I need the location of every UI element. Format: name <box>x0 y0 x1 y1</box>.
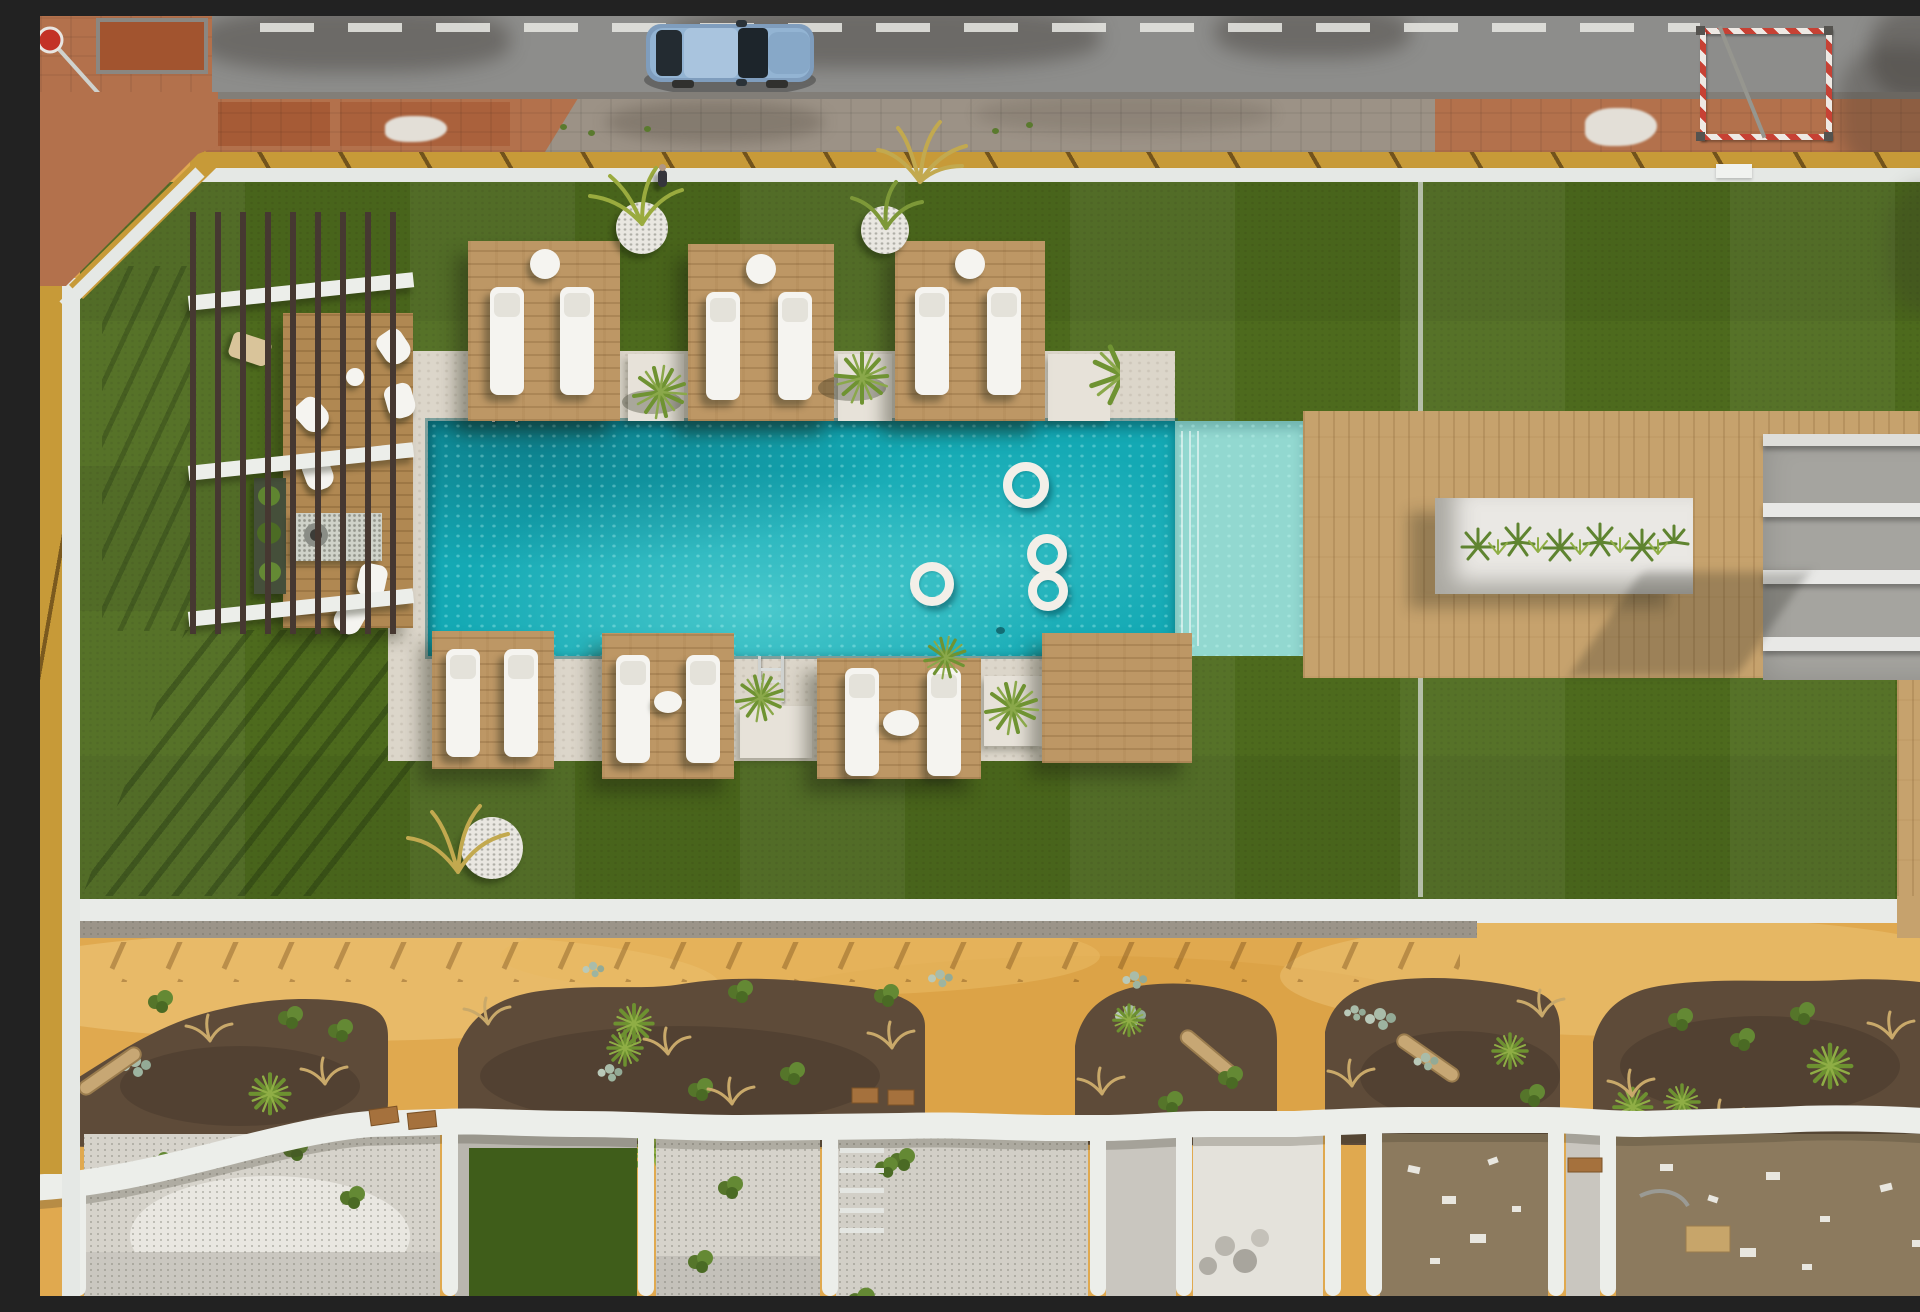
side-table <box>530 249 560 279</box>
car-rear-window <box>656 30 682 76</box>
fence-post <box>1696 132 1705 141</box>
weed <box>644 126 651 132</box>
lounger-platform <box>432 631 554 769</box>
structure-beam <box>1763 503 1920 517</box>
structure-beam <box>1763 637 1920 651</box>
car-mirror <box>736 20 747 27</box>
car-roof <box>684 28 738 78</box>
road <box>40 16 1920 94</box>
curb-line <box>40 92 1920 99</box>
weed <box>560 124 567 130</box>
aerial-photo: Aerial drone view of a new-build residen… <box>40 16 1920 1296</box>
car-wheel <box>672 80 694 88</box>
fence-post <box>1696 26 1705 35</box>
sun-lounger <box>504 649 538 757</box>
timber-deck-east-strip <box>1897 678 1920 901</box>
weed <box>1026 122 1033 128</box>
sun-lounger <box>560 287 594 395</box>
person-on-lawn <box>658 170 667 187</box>
lounger-platform <box>468 241 620 421</box>
pampas-grass <box>400 786 520 886</box>
ochre-coping-band <box>190 152 1920 168</box>
pool-ring-float <box>1028 571 1068 611</box>
water-sparkle <box>1175 421 1303 656</box>
shade-structure <box>1763 434 1920 680</box>
pergola-slat-shadow <box>102 266 194 631</box>
shelf-step <box>1189 431 1191 646</box>
sun-lounger <box>490 287 524 395</box>
terrace-and-patios <box>40 896 1920 1296</box>
gate-bump <box>1716 164 1752 178</box>
pool-tanning-shelf <box>1175 421 1303 656</box>
sign-disc <box>40 28 62 52</box>
white-rail-band <box>40 899 1897 923</box>
weed <box>992 128 999 134</box>
ochre-wall-left <box>40 278 62 901</box>
pool-ring-float <box>910 562 954 606</box>
pampas-grass <box>872 104 982 194</box>
white-rail-band <box>190 168 1920 182</box>
pool-ring-float <box>1027 534 1067 574</box>
fence-post <box>1824 132 1833 141</box>
corner-chamfer <box>40 76 300 316</box>
shelf-step <box>1197 431 1199 646</box>
weed <box>588 130 595 136</box>
barrier-tape <box>1826 28 1832 140</box>
fence-post <box>1824 26 1833 35</box>
palm-fronds <box>590 168 682 224</box>
lawn-seam-line <box>1418 678 1423 897</box>
parked-car <box>638 18 828 100</box>
barrier-tape <box>1700 28 1706 140</box>
car-mirror <box>736 79 747 86</box>
parking-bay-markings <box>260 23 1700 32</box>
sun-lounger <box>446 649 480 757</box>
lawn-seam-line <box>1418 182 1423 412</box>
white-wall-left <box>62 896 80 1296</box>
ochre-wall-left <box>40 896 62 1174</box>
car-bonnet <box>768 32 810 74</box>
railing-shadows <box>100 942 1460 982</box>
white-wall-left <box>62 278 80 901</box>
shelf-step <box>1181 431 1183 646</box>
deck-strip-continuation <box>1897 896 1920 938</box>
pool-ring-float <box>1003 462 1049 508</box>
structure-beam <box>1763 434 1920 446</box>
car-windshield <box>738 28 768 78</box>
car-wheel <box>766 80 788 88</box>
